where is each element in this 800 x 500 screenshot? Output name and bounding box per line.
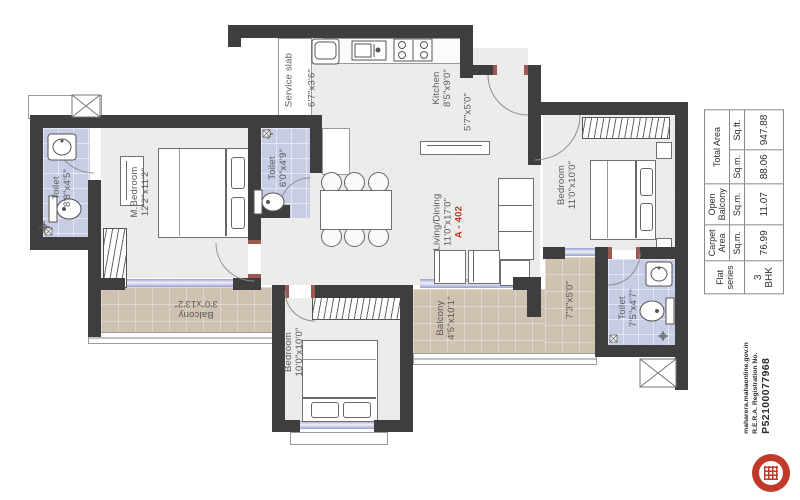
room-label-balcony-bottom: Balcony 4'5"x10'1" xyxy=(435,296,457,340)
value-open-balcony-sqm: 11.07 xyxy=(745,184,784,225)
cross-mark-icon xyxy=(640,359,676,387)
wardrobe xyxy=(582,117,670,139)
room-dim: 3'0"x13'2" xyxy=(174,298,218,309)
room-label-balcony-left: Balcony 3'0"x13'2" xyxy=(174,298,218,320)
value-total-sqm: 88.06 xyxy=(745,150,784,184)
wall xyxy=(30,115,261,128)
room-dim: 4'5"x10'1" xyxy=(446,296,457,340)
room-name: Living/Dining xyxy=(432,194,443,251)
wall xyxy=(595,345,680,357)
door-jamb xyxy=(248,240,261,244)
rera-reg-number: P52100077968 xyxy=(760,342,772,434)
wall xyxy=(272,420,300,432)
wardrobe xyxy=(312,296,406,320)
wall xyxy=(527,277,541,317)
unit-sqft: Sq.ft. xyxy=(730,110,745,150)
value-carpet-sqm: 76.99 xyxy=(745,225,784,261)
room-dim: 8'5"x9'0" xyxy=(442,69,453,107)
room-dim: 11'0"x17'0" xyxy=(443,194,454,251)
room-dim: 8'8"x4'5" xyxy=(62,169,73,207)
door-jamb xyxy=(248,274,261,278)
value-total-sqft: 947.88 xyxy=(745,110,784,150)
rera-stamp-icon xyxy=(752,454,790,492)
balcony-bottom-railing xyxy=(413,353,597,365)
wall xyxy=(575,102,688,115)
room-name: Bedroom xyxy=(283,327,294,376)
balcony-bottom-floor xyxy=(413,289,545,353)
room-label-toilet-bottom-right: Toilet 7'5"x4'7" xyxy=(617,289,639,327)
room-label-bedroom-bottom: Bedroom 10'0"x10'0" xyxy=(283,327,305,376)
room-label-toilet-top-left: Toilet 8'8"x4'5" xyxy=(51,169,73,207)
room-name: Service slab xyxy=(284,53,295,107)
wall xyxy=(374,420,413,432)
wall xyxy=(88,180,101,240)
room-name: Toilet xyxy=(617,289,628,327)
window-sill xyxy=(290,432,388,445)
wall xyxy=(310,128,322,173)
room-name: Balcony xyxy=(435,296,446,340)
col-total-area: Total Area xyxy=(705,110,730,184)
m-bedroom-window xyxy=(125,279,233,287)
bed-right xyxy=(590,160,656,240)
door-jamb xyxy=(636,247,640,259)
wall xyxy=(460,65,493,75)
wall xyxy=(228,25,241,47)
room-dim: 7'3"x5'0" xyxy=(565,281,576,319)
room-name: Balcony xyxy=(174,309,218,320)
balcony-left-railing xyxy=(88,332,274,344)
wall xyxy=(543,247,565,259)
door-jamb xyxy=(285,285,289,298)
room-name: Toilet xyxy=(267,149,278,187)
room-dim: 12'2"x11'2" xyxy=(140,167,151,218)
door-jamb xyxy=(524,65,528,75)
area-table: Flat series Carpet Area Open Balcony Tot… xyxy=(704,110,784,295)
unit-sqm: Sq.m. xyxy=(730,225,745,261)
wall xyxy=(315,285,400,298)
room-dim-balcony-right: 7'3"x5'0" xyxy=(565,281,576,319)
wall xyxy=(101,278,125,290)
room-label-service-slab: Service slab xyxy=(284,53,295,107)
room-dim: 10'0"x10'0" xyxy=(294,327,305,376)
door-jamb xyxy=(608,247,612,259)
wall xyxy=(228,25,473,38)
floor-plan-sheet: Toilet 8'8"x4'5" M.Bedroom 12'2"x11'2" S… xyxy=(0,0,800,500)
rera-website: maharera.mahaonline.gov.in xyxy=(742,342,751,434)
duct-shaft xyxy=(640,359,676,387)
unit-sqm: Sq.m. xyxy=(730,150,745,184)
wall xyxy=(528,65,541,165)
wall xyxy=(400,285,413,432)
armchair xyxy=(468,250,500,284)
room-dim: 5'7"x5'0" xyxy=(463,93,474,131)
room-label-toilet-mid: Toilet 6'0"x4'9" xyxy=(267,149,289,187)
col-open-balcony: Open Balcony xyxy=(705,184,730,225)
wall xyxy=(88,237,101,337)
room-label-kitchen: Kitchen 8'5"x9'0" xyxy=(431,69,453,107)
bed-master xyxy=(158,148,250,238)
room-name: Kitchen xyxy=(431,69,442,107)
room-dim: 6'7"x3'6" xyxy=(307,69,318,107)
room-dim-foyer: 5'7"x5'0" xyxy=(463,93,474,131)
room-label-m-bedroom: M.Bedroom 12'2"x11'2" xyxy=(129,167,151,218)
room-label-living-dining: Living/Dining 11'0"x17'0" A - 402 xyxy=(432,194,465,251)
rera-reg-label: R.E.R.A. Registration No. xyxy=(751,342,760,434)
stamp-qr-pattern xyxy=(759,461,783,485)
wall xyxy=(30,115,43,250)
col-flat-series: Flat series xyxy=(705,261,745,294)
wall xyxy=(640,247,688,259)
wall xyxy=(595,247,608,357)
room-name: Bedroom xyxy=(556,161,567,209)
rera-registration-block: maharera.mahaonline.gov.in R.E.R.A. Regi… xyxy=(742,342,772,434)
bedroom-right-window xyxy=(565,248,595,256)
wall xyxy=(248,115,261,240)
room-name: Toilet xyxy=(51,169,62,207)
kitchen-counter xyxy=(323,38,462,64)
wall xyxy=(261,115,322,128)
room-label-bedroom-right: Bedroom 11'0"x10'0" xyxy=(556,161,578,209)
wall xyxy=(233,278,261,290)
room-dim-service-slab: 6'7"x3'6" xyxy=(307,69,318,107)
flat-number: A - 402 xyxy=(454,194,465,251)
room-name: M.Bedroom xyxy=(129,167,140,218)
cross-mark-icon xyxy=(640,359,676,387)
door-jamb xyxy=(311,285,315,298)
bed-bottom xyxy=(302,340,378,422)
wall xyxy=(248,205,290,218)
bedroom-bottom-window xyxy=(300,421,374,429)
col-carpet-area: Carpet Area xyxy=(705,225,730,261)
room-dim: 11'0"x10'0" xyxy=(567,161,578,209)
room-dim: 7'5"x4'7" xyxy=(628,289,639,327)
room-dim: 6'0"x4'9" xyxy=(278,149,289,187)
dining-table xyxy=(320,190,392,230)
door-jamb xyxy=(493,65,497,75)
value-flat-series: 3 BHK xyxy=(745,261,784,294)
bedside-table xyxy=(656,142,672,159)
sofa xyxy=(498,178,534,260)
kitchen-platform xyxy=(322,128,350,175)
unit-sqm: Sq.m. xyxy=(730,184,745,225)
armchair xyxy=(434,250,466,284)
tv-unit xyxy=(420,141,490,155)
